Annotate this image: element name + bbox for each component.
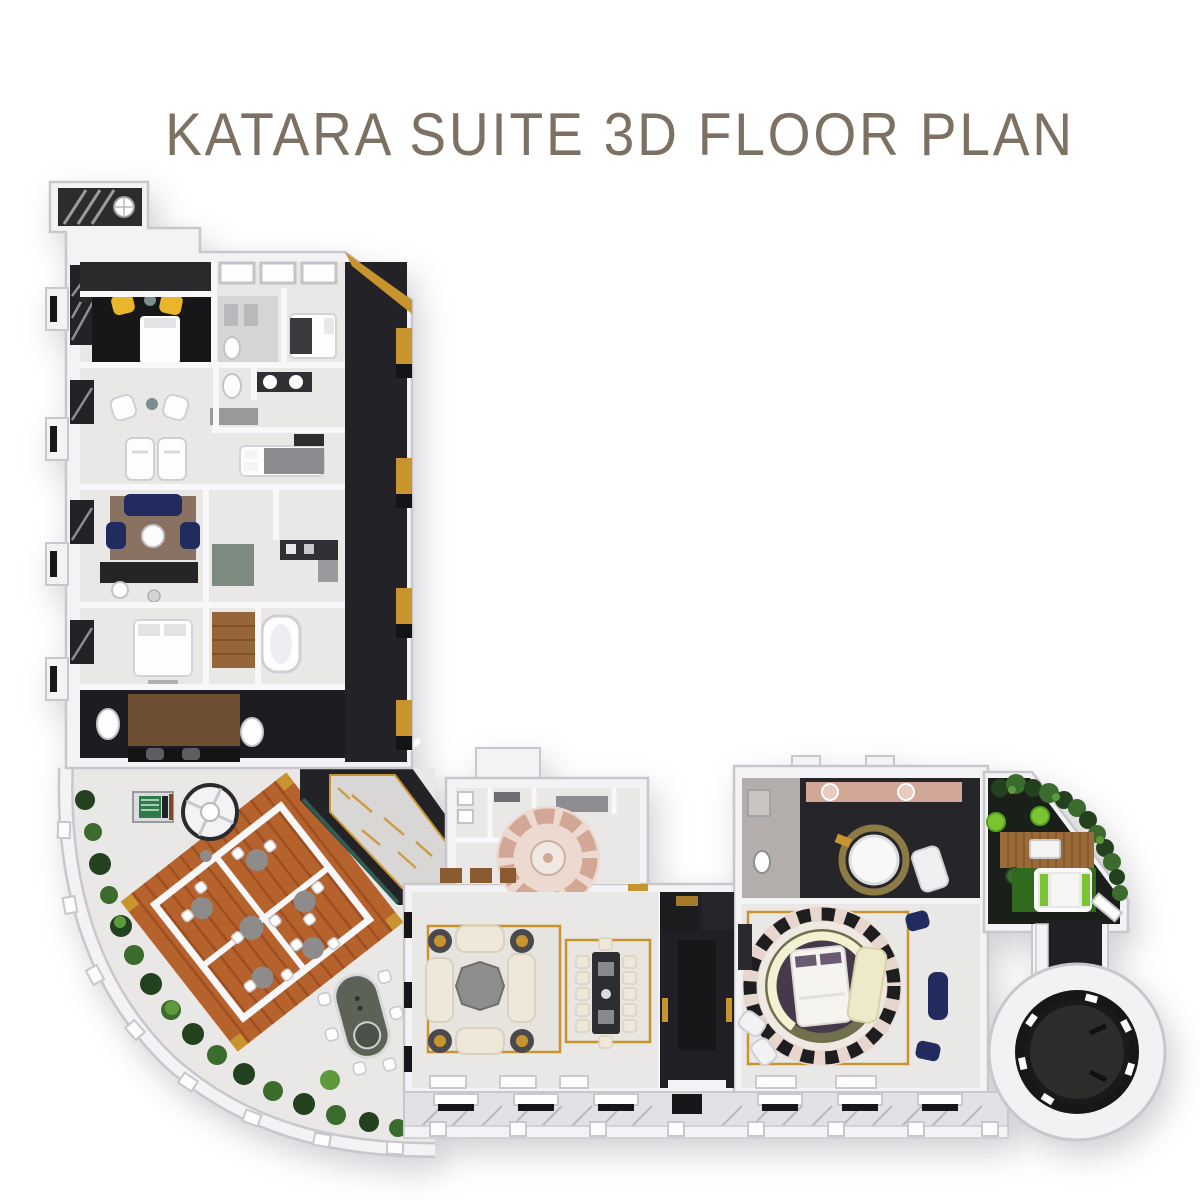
bean-bag-1 — [987, 813, 1005, 831]
spa-floor — [1027, 1002, 1127, 1102]
loveseat-top — [456, 926, 504, 952]
page-title: KATARA SUITE 3D FLOOR PLAN — [165, 102, 1075, 169]
floor-plan-page: KATARA SUITE 3D FLOOR PLAN — [0, 0, 1200, 1200]
recliner-1 — [126, 438, 154, 480]
master-bedroom — [736, 904, 980, 1088]
dining-area — [566, 938, 650, 1048]
katara-suite-plan — [46, 182, 1165, 1154]
round-table — [142, 525, 164, 547]
north-wing — [46, 182, 412, 768]
exercise-machine — [133, 792, 173, 822]
tv-console — [738, 924, 752, 970]
navy-bench — [928, 972, 948, 1020]
coffee-table — [456, 962, 504, 1010]
media-table — [128, 694, 240, 746]
spa-room — [989, 964, 1165, 1140]
bedroom-1 — [92, 292, 214, 364]
salon-west-windows — [404, 912, 412, 1072]
south-facade — [404, 1092, 1008, 1138]
bathtub — [262, 616, 300, 672]
skylights — [220, 263, 336, 283]
salon — [404, 892, 658, 1088]
west-window-bays — [46, 288, 68, 700]
bean-bag-2 — [1031, 807, 1049, 825]
round-tub — [850, 836, 898, 884]
stair-core — [58, 188, 142, 226]
east-corridor — [345, 252, 412, 762]
media-room — [80, 688, 345, 762]
writing-desk — [100, 562, 198, 583]
bathroom-1 — [218, 296, 278, 364]
floor-plan-canvas: KATARA SUITE 3D FLOOR PLAN — [0, 0, 1200, 1200]
foyer-sills — [440, 868, 516, 883]
master-bed — [790, 945, 852, 1026]
entry-vestibule — [660, 892, 734, 1109]
navy-sofa — [124, 494, 182, 516]
sofa-right — [508, 954, 535, 1022]
garden-table — [1030, 840, 1060, 858]
master-bath — [742, 778, 980, 898]
loveseat-bottom — [456, 1028, 504, 1054]
west-window-slits — [50, 296, 57, 692]
lounger — [1036, 870, 1090, 910]
side-table — [200, 850, 212, 862]
entry-door — [672, 1094, 702, 1114]
sofa-left — [426, 958, 453, 1022]
bedroom-2 — [290, 314, 336, 358]
title-text: KATARA SUITE 3D FLOOR PLAN — [165, 102, 1075, 169]
recliner-2 — [158, 438, 186, 480]
